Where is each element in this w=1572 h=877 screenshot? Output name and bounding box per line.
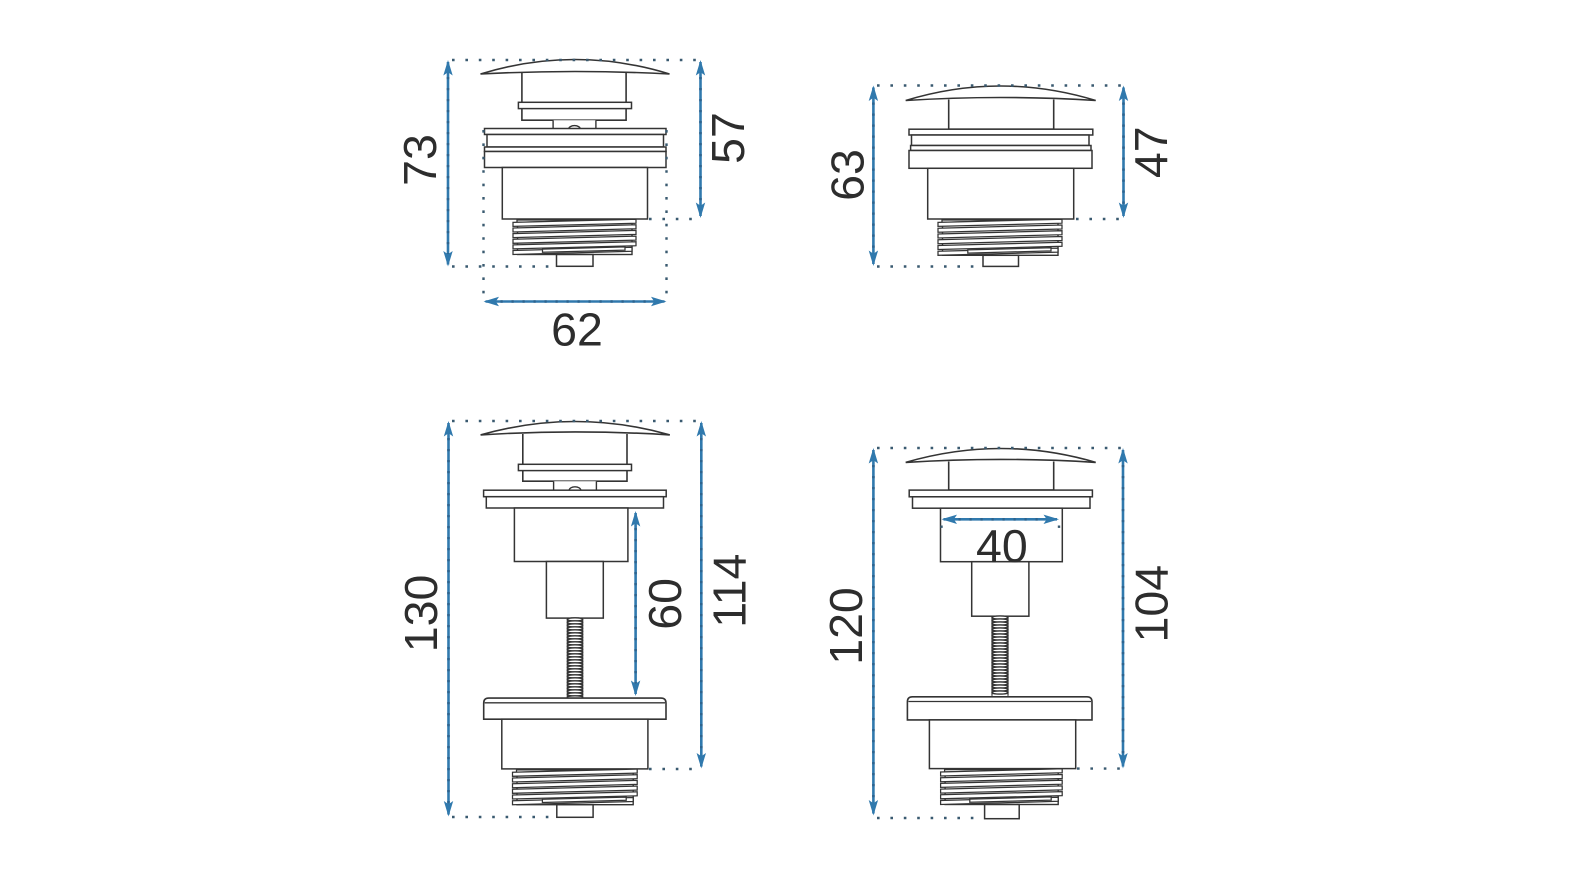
svg-text:40: 40 [976,520,1028,572]
svg-text:63: 63 [822,149,874,201]
svg-text:130: 130 [395,575,447,653]
svg-text:47: 47 [1125,126,1177,178]
svg-text:60: 60 [639,578,691,630]
svg-text:73: 73 [394,134,446,186]
svg-text:104: 104 [1126,565,1178,643]
svg-text:120: 120 [820,587,872,665]
svg-text:114: 114 [703,554,755,628]
svg-text:62: 62 [551,304,603,356]
svg-text:57: 57 [702,112,754,164]
